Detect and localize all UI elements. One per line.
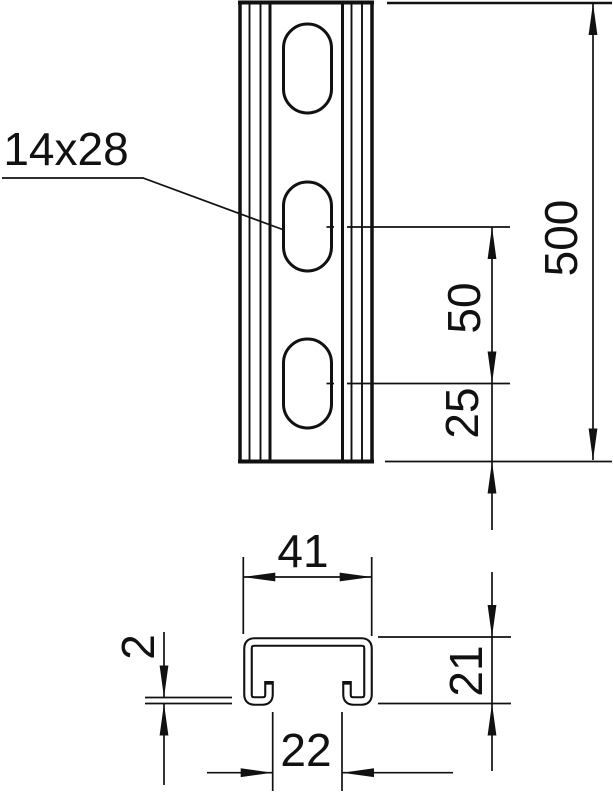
dim-text-41: 41 bbox=[277, 525, 328, 577]
arrowhead-down bbox=[589, 429, 598, 461]
drawing-sheet: 14x28 50 25 500 41 bbox=[0, 0, 613, 794]
dim-profile-width: 41 bbox=[243, 525, 371, 636]
dim-wall-thickness: 2 bbox=[112, 632, 232, 785]
arrowhead-up bbox=[589, 3, 598, 35]
slot-hole-2 bbox=[284, 182, 332, 271]
arrowhead-up bbox=[160, 704, 169, 736]
arrowhead-left bbox=[243, 573, 275, 582]
dim-total-length: 500 bbox=[535, 3, 597, 461]
slot-size-label: 14x28 bbox=[3, 123, 128, 175]
arrowhead-down bbox=[488, 605, 497, 637]
slot-hole-3 bbox=[284, 339, 332, 428]
rail-front-view bbox=[238, 1, 374, 463]
dim-hole-spacing: 50 25 bbox=[436, 227, 496, 530]
dim-text-50: 50 bbox=[438, 282, 490, 333]
dim-text-22: 22 bbox=[280, 724, 331, 776]
arrowhead-right bbox=[340, 573, 372, 582]
arrowhead-down bbox=[160, 666, 169, 698]
arrowhead-up bbox=[488, 227, 497, 259]
dim-text-21: 21 bbox=[440, 645, 492, 696]
technical-drawing: 14x28 50 25 500 41 bbox=[0, 0, 613, 794]
arrowhead-down bbox=[488, 352, 497, 384]
dim-text-2: 2 bbox=[112, 634, 164, 660]
slot-hole-1 bbox=[284, 24, 332, 113]
arrowhead-up bbox=[488, 704, 497, 736]
profile-section-view bbox=[248, 642, 368, 701]
dim-opening-width: 22 bbox=[207, 712, 453, 791]
arrowhead-right bbox=[241, 768, 273, 777]
dim-profile-height: 21 bbox=[378, 572, 511, 771]
arrowhead-left bbox=[342, 768, 374, 777]
arrowhead-up bbox=[488, 462, 497, 494]
dim-text-500: 500 bbox=[535, 200, 587, 277]
section-profile-outline bbox=[248, 642, 368, 701]
dim-text-25: 25 bbox=[436, 387, 488, 438]
